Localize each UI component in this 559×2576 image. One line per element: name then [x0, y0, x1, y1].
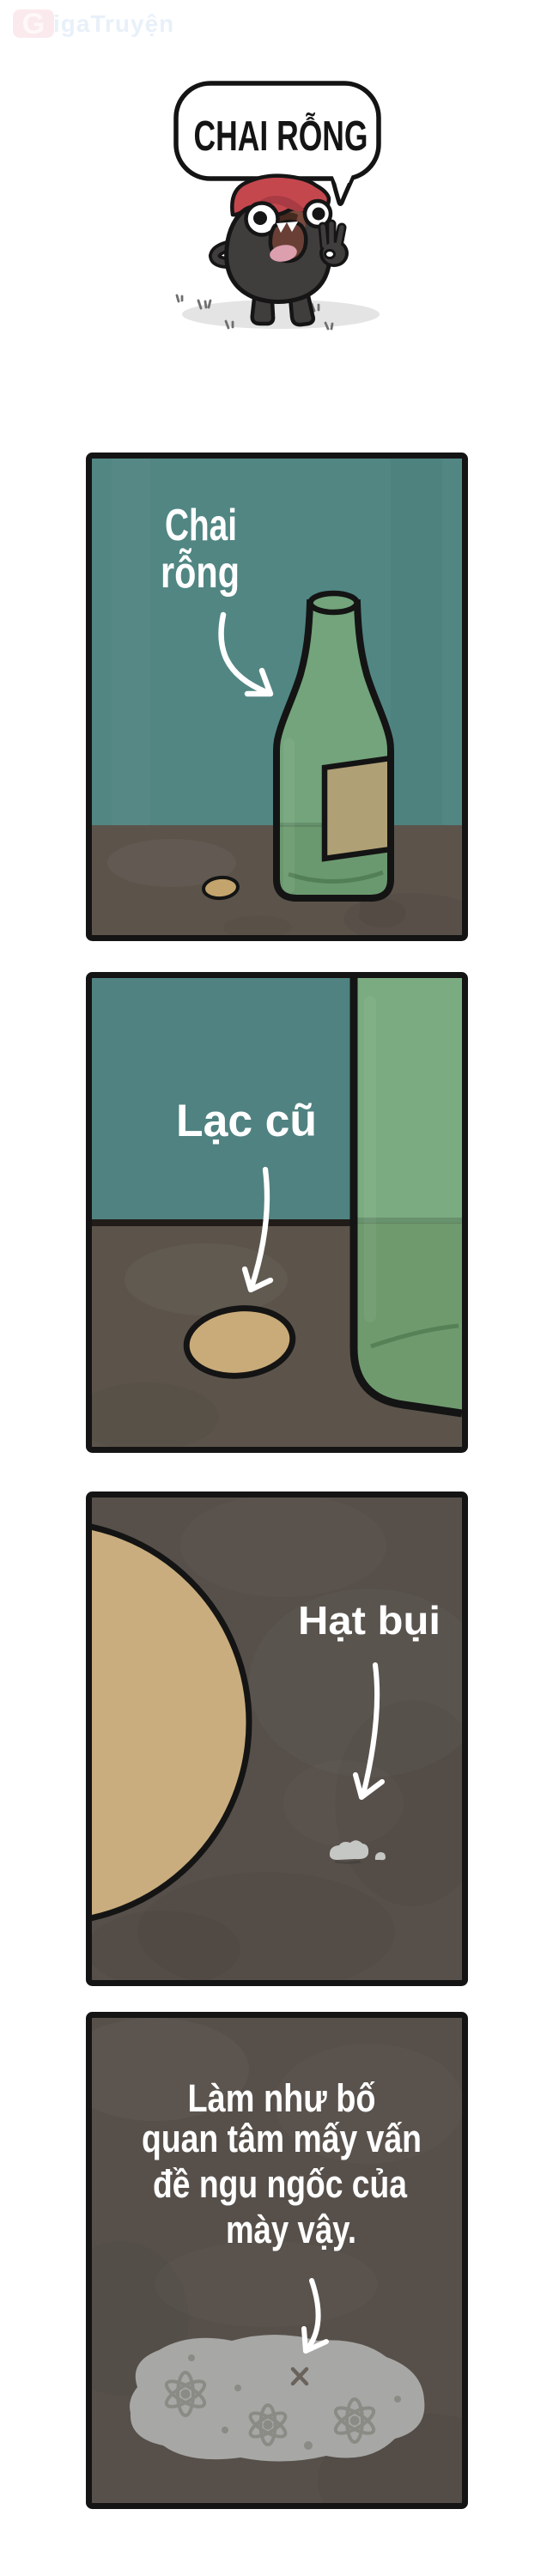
svg-text:mày vậy.: mày vậy.	[226, 2208, 356, 2251]
svg-text:Lạc cũ: Lạc cũ	[176, 1096, 317, 1146]
svg-text:đề ngu ngốc của: đề ngu ngốc của	[153, 2162, 408, 2206]
svg-text:rỗng: rỗng	[161, 548, 240, 598]
svg-text:G: G	[22, 8, 45, 40]
svg-text:Làm như bố: Làm như bố	[188, 2076, 376, 2120]
svg-text:igaTruyện: igaTruyện	[53, 10, 174, 37]
svg-text:CHAI RỖNG: CHAI RỖNG	[194, 112, 368, 160]
svg-text:Hạt bụi: Hạt bụi	[298, 1598, 441, 1643]
svg-text:Chai: Chai	[165, 501, 237, 550]
svg-text:quan tâm mấy vấn: quan tâm mấy vấn	[142, 2117, 422, 2160]
